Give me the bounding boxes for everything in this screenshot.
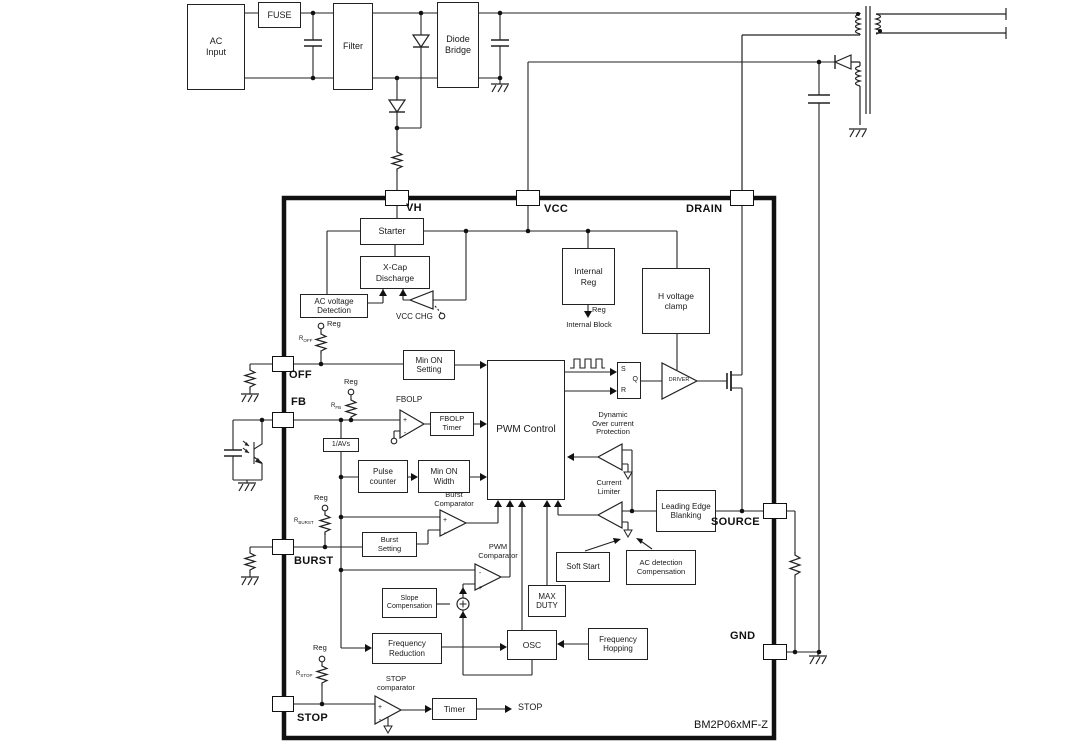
burst-comparator-label: Burst Comparator: [426, 491, 482, 508]
burst-resistor-icon: [245, 551, 255, 573]
reg-label-stop: Reg: [313, 644, 327, 653]
max-duty-block: MAX DUTY: [528, 585, 566, 617]
ac-detection-compensation-label: AC detection Compensation: [637, 559, 685, 577]
filter-label: Filter: [343, 41, 363, 52]
soft-start-label: Soft Start: [566, 562, 599, 571]
r-fb-resistor-icon: [346, 398, 356, 420]
r-burst-label: RBURST: [294, 518, 314, 525]
burst-setting-label: Burst Setting: [378, 536, 401, 554]
burst-setting-block: Burst Setting: [362, 532, 417, 557]
osc-block: OSC: [507, 630, 557, 660]
reg-label-fb: Reg: [344, 378, 358, 387]
pin-label-off: OFF: [289, 369, 312, 381]
reg-label-internal: Reg: [592, 306, 606, 315]
reg-terminal-burst: [322, 505, 328, 511]
min-on-width-block: Min ON Width: [418, 460, 470, 493]
timer-label: Timer: [444, 704, 465, 714]
source-gnd-external: [787, 511, 820, 656]
current-limiter-label: Current Limiter: [588, 479, 630, 496]
aux-ground-icon: [849, 129, 867, 137]
pwm-control-block: PWM Control: [487, 360, 565, 500]
ac-input-block: AC Input: [187, 4, 245, 90]
r-stop-label: RSTOP: [296, 671, 313, 678]
xcap-discharge-label: X-Cap Discharge: [376, 262, 414, 282]
min-on-setting-block: Min ON Setting: [403, 350, 455, 380]
pin-label-fb: FB: [291, 396, 306, 408]
ac-voltage-detection-label: AC voltage Detection: [314, 297, 353, 316]
fbolp-comparator-label: FBOLP: [396, 395, 422, 404]
current-limiter-comparator-icon: [598, 502, 622, 528]
sr-latch-s-label: S: [621, 366, 626, 374]
h-voltage-clamp-label: H voltage clamp: [658, 291, 694, 311]
gnd-ground-icon: [809, 656, 827, 664]
filter-block: Filter: [333, 3, 373, 90]
leading-edge-blanking-label: Leading Edge Blanking: [661, 502, 710, 521]
r-off-resistor-icon: [316, 332, 326, 354]
pin-label-vcc: VCC: [544, 203, 568, 215]
part-number-label: BM2P06xMF-Z: [640, 719, 768, 732]
fb-capacitor-icon: [224, 450, 242, 456]
pin-vcc: [516, 190, 540, 206]
fuse-label: FUSE: [267, 10, 291, 21]
osc-label: OSC: [523, 640, 541, 650]
off-ground-icon: [241, 394, 259, 402]
frequency-hopping-block: Frequency Hopping: [588, 628, 648, 660]
xcap-discharge-block: X-Cap Discharge: [360, 256, 430, 289]
diode-bridge-label: Diode Bridge: [445, 34, 471, 55]
reg-terminal-fb: [348, 389, 354, 395]
fb-ground-icon: [238, 483, 256, 491]
leading-edge-blanking-block: Leading Edge Blanking: [656, 490, 716, 532]
pin-drain: [730, 190, 754, 206]
reg-terminal-stop: [319, 656, 325, 662]
pin-fb: [272, 412, 294, 428]
sr-latch-q-label: Q: [633, 376, 638, 384]
fb-pin-external: [233, 420, 272, 483]
pin-label-vh: VH: [406, 202, 422, 214]
ac-detection-compensation-block: AC detection Compensation: [626, 550, 696, 585]
sense-resistor-icon: [790, 552, 800, 578]
pwm-control-label: PWM Control: [496, 424, 555, 436]
pulse-counter-block: Pulse counter: [358, 460, 408, 493]
vcc-chg-buffer-icon: [410, 291, 433, 309]
r-burst-resistor-icon: [320, 513, 330, 535]
max-duty-label: MAX DUTY: [536, 592, 558, 611]
bridge-ground-icon: [491, 84, 509, 92]
fbolp-timer-block: FBOLP Timer: [430, 412, 474, 436]
pin-source: [763, 503, 787, 519]
frequency-reduction-label: Frequency Reduction: [388, 639, 426, 658]
sr-latch-block: S Q R: [617, 362, 641, 399]
ac-input-label: AC Input: [206, 36, 226, 57]
reg-label-off: Reg: [327, 320, 341, 329]
avs-block: 1/AVs: [323, 438, 359, 452]
vh-startup-resistor-icon: [392, 150, 402, 172]
r-off-label: ROFF: [299, 336, 312, 343]
junction-dots: [260, 11, 882, 707]
burst-ground-icon: [241, 577, 259, 585]
vcc-capacitor-icon: [808, 95, 830, 103]
startup-diode-bottom-icon: [389, 100, 405, 112]
starter-label: Starter: [378, 226, 405, 237]
pwm-comparator-label: PWM Comparator: [470, 543, 526, 560]
timer-block: Timer: [432, 698, 477, 720]
pin-label-burst: BURST: [294, 555, 333, 567]
min-on-width-label: Min ON Width: [430, 467, 457, 486]
pin-burst: [272, 539, 294, 555]
off-resistor-icon: [245, 368, 255, 390]
vcc-diode-icon: [835, 55, 851, 69]
internal-reg-label: Internal Reg: [574, 266, 602, 286]
pin-stop: [272, 696, 294, 712]
vcc-chg-label: VCC CHG: [396, 312, 433, 321]
fuse-block: FUSE: [258, 2, 301, 28]
burst-plus: +: [443, 517, 447, 524]
avs-label: 1/AVs: [332, 441, 350, 449]
internal-block-label: Internal Block: [556, 321, 622, 330]
pulse-counter-label: Pulse counter: [370, 467, 397, 486]
pin-label-drain: DRAIN: [686, 203, 722, 215]
driver-label: DRIVER: [663, 377, 695, 383]
primary-winding-icon: [856, 14, 861, 34]
overcurrent-protection-label: Dynamic Over current Protection: [584, 411, 642, 437]
diode-bridge-block: Diode Bridge: [437, 2, 479, 88]
overcurrent-comparator-icon: [598, 444, 622, 470]
reg-label-burst: Reg: [314, 494, 328, 503]
pulse-waveform-icon: [570, 359, 605, 368]
frequency-reduction-block: Frequency Reduction: [372, 633, 442, 664]
aux-winding-icon: [856, 66, 861, 86]
stop-plus: +: [378, 704, 382, 711]
soft-start-block: Soft Start: [556, 552, 610, 582]
stop-output-label: STOP: [518, 702, 542, 712]
pin-gnd: [763, 644, 787, 660]
r-fb-label: RFB: [331, 403, 341, 410]
slope-compensation-block: Slope Compensation: [382, 588, 437, 618]
pin-label-source: SOURCE: [711, 516, 760, 528]
vcc-chg-terminal: [439, 313, 445, 319]
pin-label-stop: STOP: [297, 712, 328, 724]
ac-voltage-detection-block: AC voltage Detection: [300, 294, 368, 318]
fbolp-plus: +: [403, 417, 407, 424]
optocoupler-transistor-icon: [254, 420, 262, 480]
sr-latch-r-label: R: [621, 387, 626, 395]
summing-node-icon: [457, 598, 469, 610]
internal-reg-block: Internal Reg: [562, 248, 615, 305]
startup-diode-top-icon: [413, 35, 429, 47]
block-diagram: + - + - - + + - AC Input FUSE Filter Dio…: [0, 0, 1080, 745]
stop-comparator-label: STOP comparator: [366, 675, 426, 692]
r-stop-resistor-icon: [317, 664, 327, 686]
pwm-plus: +: [478, 585, 482, 592]
min-on-setting-label: Min ON Setting: [415, 356, 442, 375]
slope-compensation-label: Slope Compensation: [387, 595, 432, 612]
h-voltage-clamp-block: H voltage clamp: [642, 268, 710, 334]
fbolp-ref-terminal: [391, 438, 397, 444]
x-capacitor-icon: [304, 40, 322, 46]
frequency-hopping-label: Frequency Hopping: [599, 635, 637, 654]
transformer-icon: [742, 6, 1006, 190]
fbolp-timer-label: FBOLP Timer: [440, 415, 465, 433]
bulk-capacitor-icon: [491, 40, 509, 46]
starter-block: Starter: [360, 218, 424, 245]
reg-terminal-off: [318, 323, 324, 329]
pin-label-gnd: GND: [730, 630, 755, 642]
